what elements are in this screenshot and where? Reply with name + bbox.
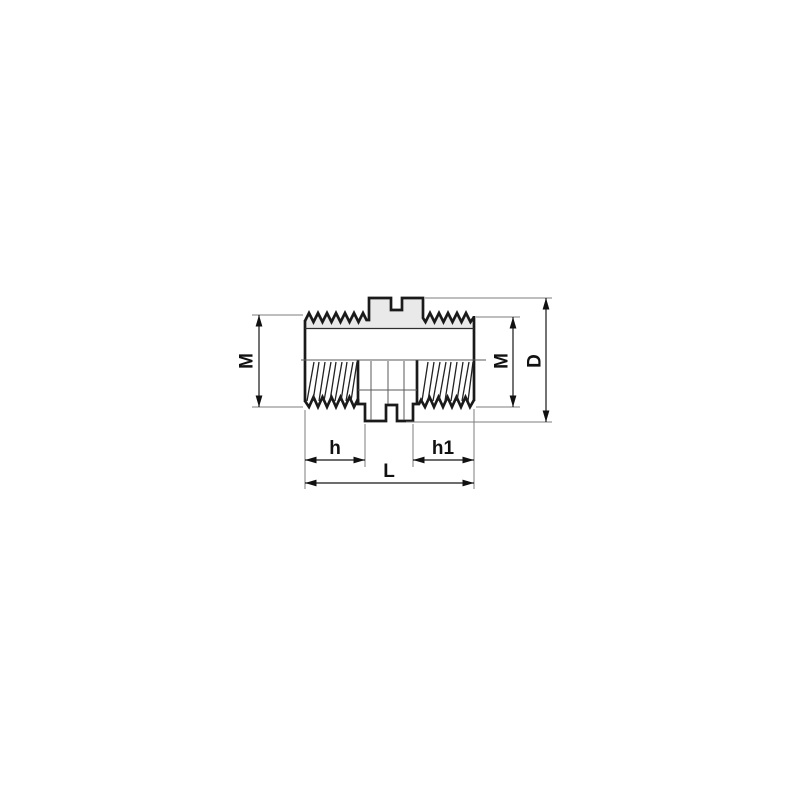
dim-label-m-left: M xyxy=(237,353,258,369)
dim-label-h1: h1 xyxy=(432,438,455,459)
dimension-m-right: M xyxy=(476,317,520,407)
dim-label-h: h xyxy=(329,438,341,459)
dimension-h1: h1 xyxy=(413,438,474,463)
hex-section xyxy=(358,361,417,421)
dimension-m-left: M xyxy=(237,315,303,407)
dim-label-d: D xyxy=(525,354,546,368)
dim-label-l: L xyxy=(383,461,395,482)
fitting-body xyxy=(301,298,486,421)
drawing-page: M M D xyxy=(0,0,800,800)
technical-drawing: M M D xyxy=(0,0,800,800)
dimension-l: L xyxy=(305,461,474,486)
dimension-h: h xyxy=(305,438,365,463)
dim-label-m-right: M xyxy=(492,353,513,369)
